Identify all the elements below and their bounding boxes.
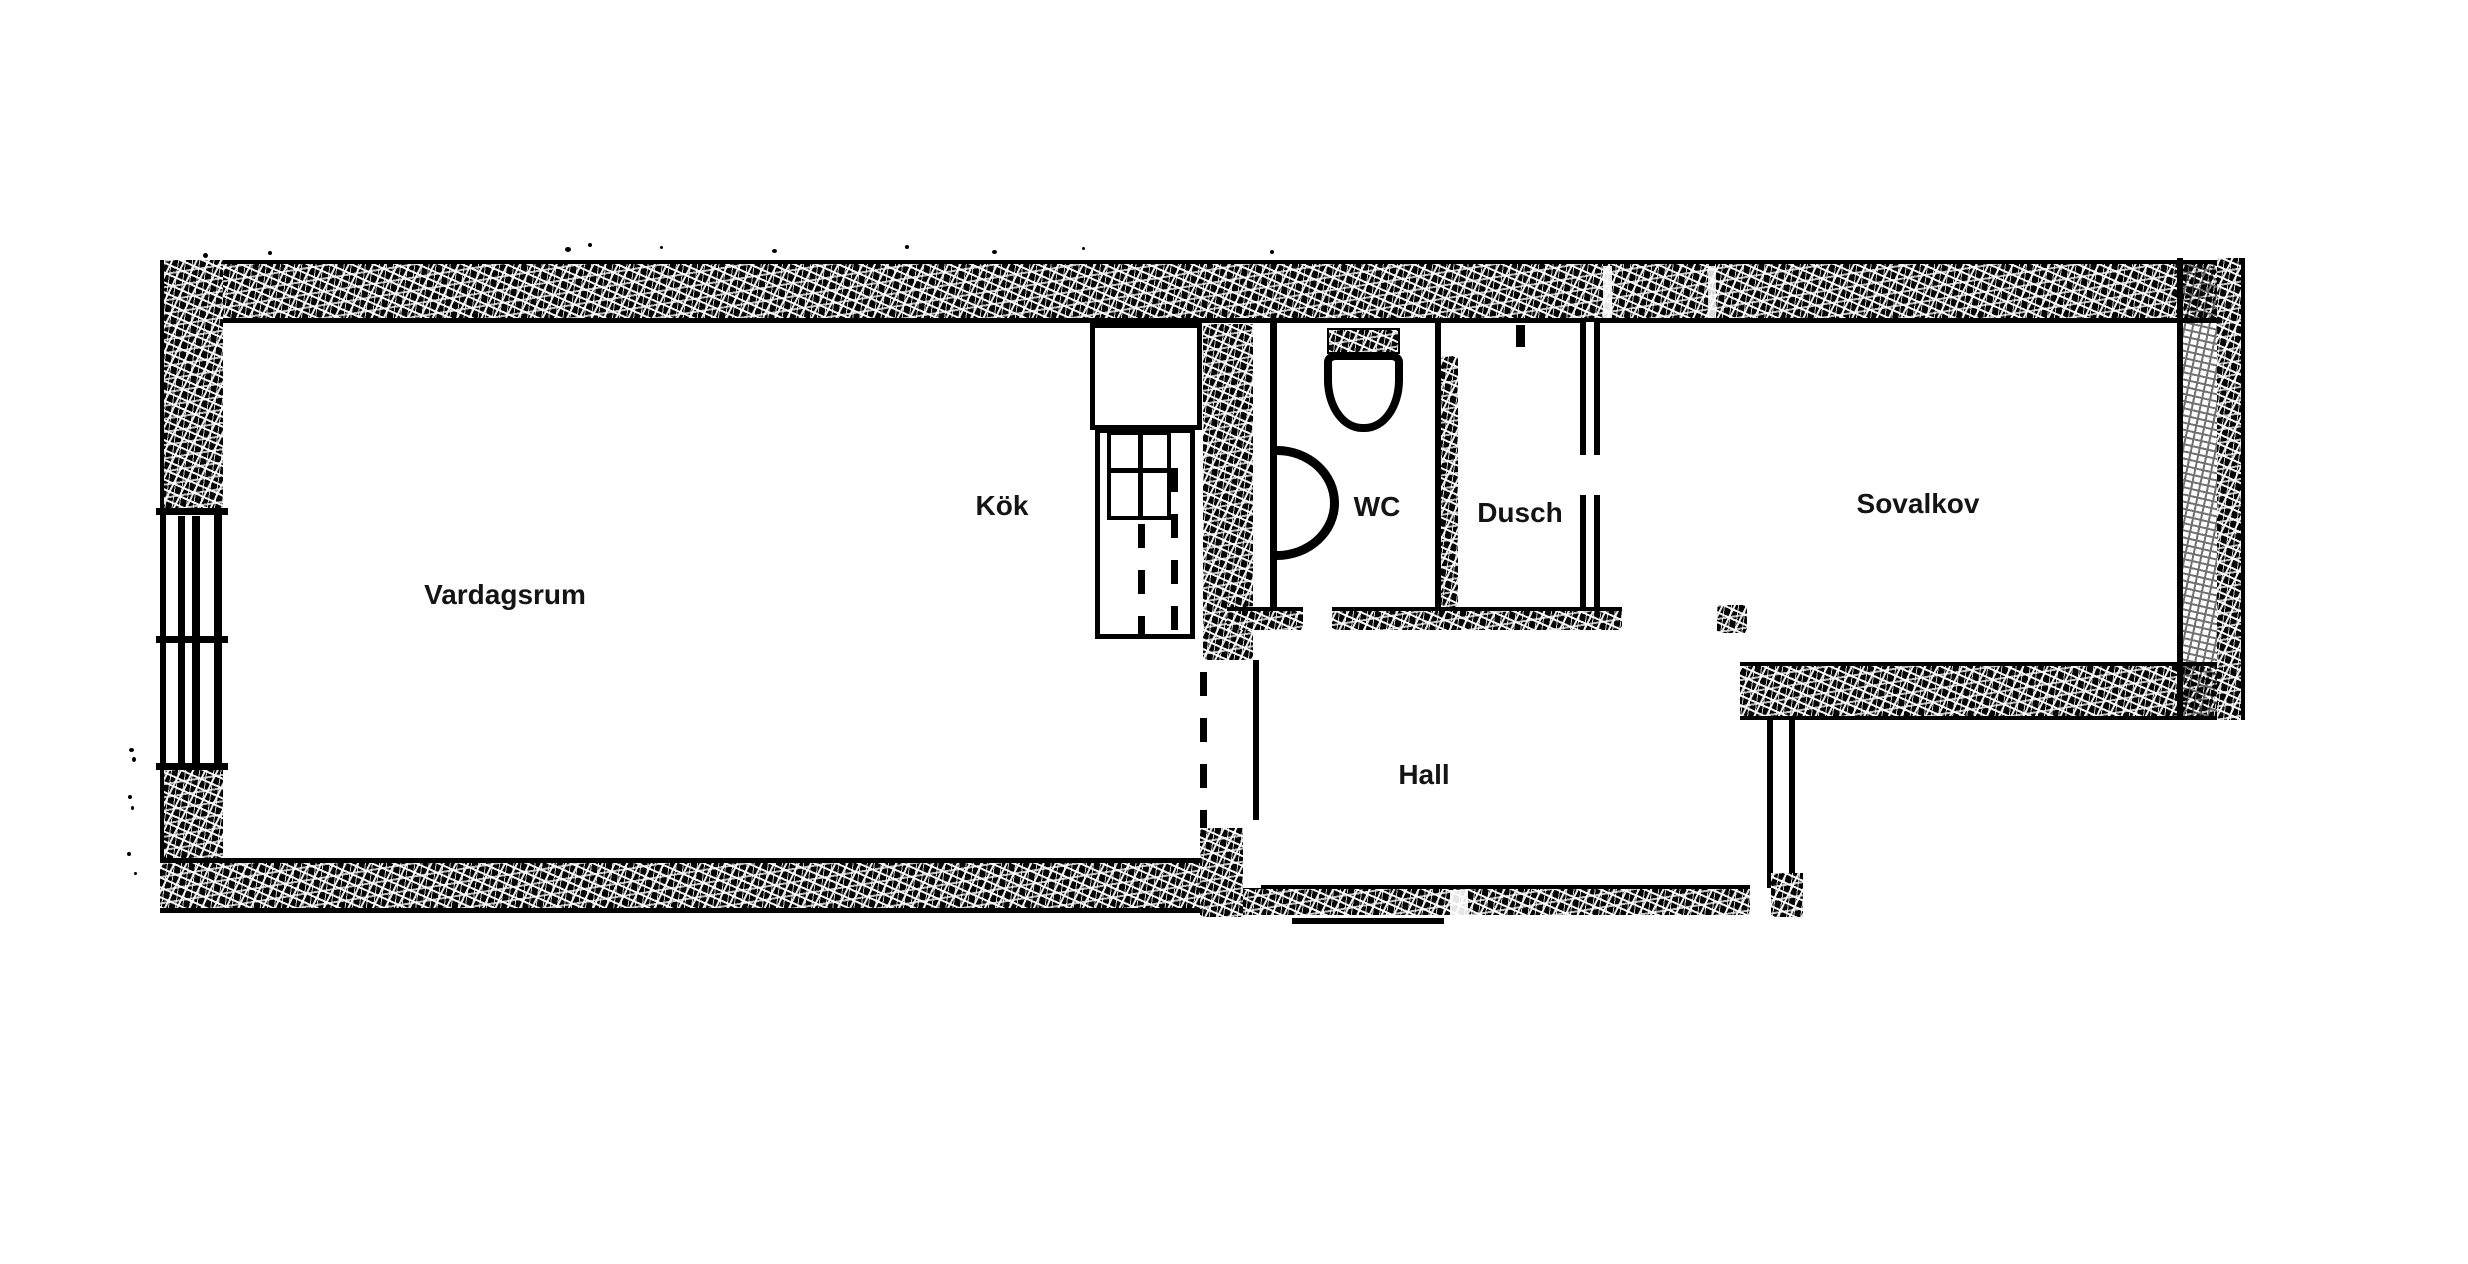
wall-dusch-right-lower <box>1580 495 1600 607</box>
wall-hall-left-line <box>1253 660 1259 820</box>
kitchen-cabinet <box>1090 323 1202 430</box>
window-sill-top <box>156 508 228 515</box>
scan-gap <box>1603 266 1612 318</box>
toilet-icon <box>1324 352 1403 432</box>
scan-speckle <box>131 806 134 810</box>
scan-speckle <box>129 748 134 752</box>
room-label-hall: Hall <box>1398 761 1449 789</box>
wall-wc-bottom-a <box>1227 607 1303 630</box>
scan-speckle <box>565 247 571 252</box>
wall-left-lower <box>160 770 223 862</box>
scan-speckle <box>588 243 592 247</box>
scan-speckle <box>127 852 131 856</box>
room-label-sovalkov: Sovalkov <box>1857 490 1980 518</box>
opening-dashed-line <box>1200 672 1207 828</box>
shower-icon <box>1516 325 1525 347</box>
scan-speckle <box>1270 250 1274 254</box>
window-sill-bottom <box>156 763 228 770</box>
toilet-tank <box>1327 328 1400 354</box>
room-label-kok: Kök <box>976 492 1029 520</box>
wall-hall-right <box>1767 717 1795 888</box>
stove-icon <box>1107 431 1171 520</box>
room-label-dusch: Dusch <box>1477 499 1563 527</box>
scan-speckle <box>128 795 132 799</box>
passage-jamb-gap <box>1243 828 1261 888</box>
wall-hall-corner-block <box>1771 873 1803 917</box>
window-sill-mid <box>156 636 228 643</box>
wall-dusch-right-upper <box>1580 322 1600 455</box>
wall-wc-left <box>1270 323 1277 630</box>
wall-left-upper <box>160 260 223 510</box>
wall-stub-sovalkov <box>1717 605 1747 633</box>
wall-right-outer <box>2217 258 2245 720</box>
wall-bottom-vardagsrum <box>160 858 1243 913</box>
scan-speckle <box>134 872 137 875</box>
room-label-vardagsrum: Vardagsrum <box>424 581 586 609</box>
floor-plan-sheet: Vardagsrum Kök WC Dusch Sovalkov Hall <box>0 0 2468 1264</box>
wall-right-mottle <box>2183 260 2217 718</box>
scan-gap <box>1708 266 1716 318</box>
wall-wc-bottom-b <box>1332 607 1622 630</box>
wall-wc-dusch-fill <box>1441 356 1458 607</box>
wall-passage-corner-block <box>1200 828 1243 917</box>
counter-dash-column <box>1138 524 1145 634</box>
scan-speckle <box>660 246 663 249</box>
wall-top <box>160 260 2245 323</box>
wall-bottom-sovalkov <box>1740 662 2245 720</box>
scan-speckle <box>772 249 777 253</box>
scan-speckle <box>132 757 136 762</box>
scan-speckle <box>1082 247 1085 250</box>
scan-speckle <box>905 245 909 249</box>
wall-bottom-outer-line <box>1292 918 1444 924</box>
scan-speckle <box>268 251 272 255</box>
scan-speckle <box>992 250 997 254</box>
wall-bottom-hall <box>1213 885 1750 915</box>
washbasin-icon <box>1277 446 1339 560</box>
counter-dash-column <box>1171 468 1178 634</box>
entrance-gap <box>1450 890 1468 915</box>
scan-speckle <box>203 253 208 258</box>
room-label-wc: WC <box>1354 493 1401 521</box>
window-icon <box>156 508 228 770</box>
